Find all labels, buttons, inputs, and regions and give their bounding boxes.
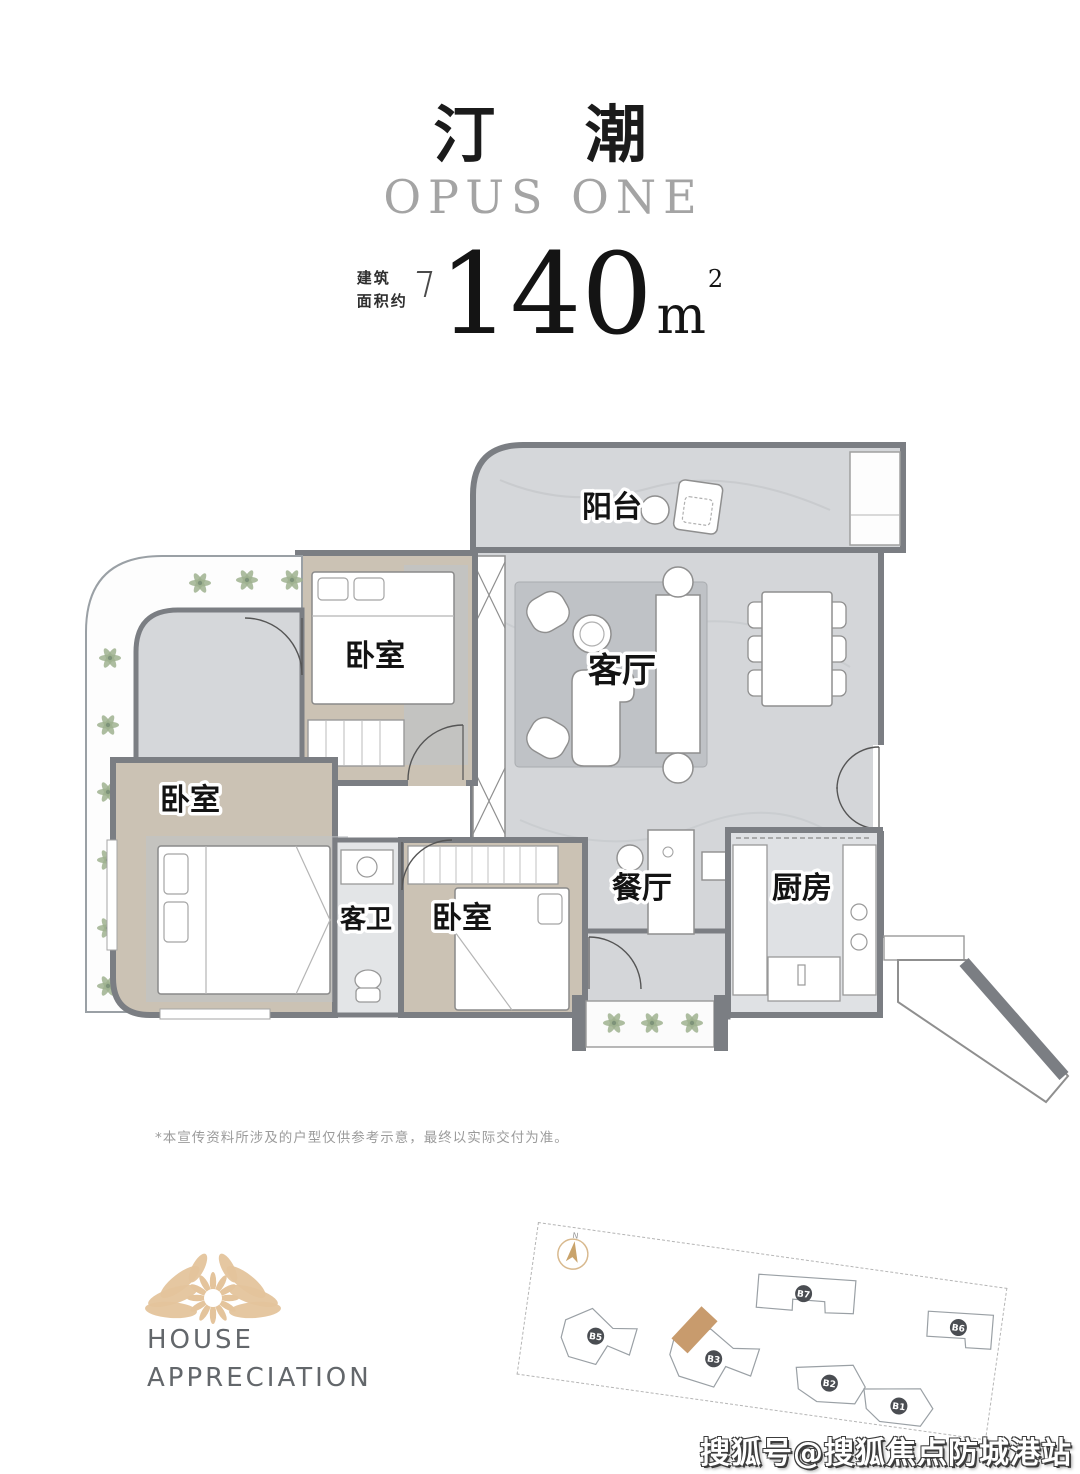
brand-logo bbox=[138, 1236, 288, 1336]
room-bath: 客卫 bbox=[335, 840, 401, 1015]
room-bedroom-top: 卧室 bbox=[298, 553, 475, 786]
room-label-bedroom-mid: 卧室 bbox=[432, 901, 492, 936]
room-label-living: 客厅 bbox=[588, 651, 656, 691]
area-unit: m bbox=[657, 293, 706, 340]
room-label-bedroom-top: 卧室 bbox=[345, 639, 405, 674]
watermark-text: 搜狐号@搜狐焦点防城港站 bbox=[700, 1428, 1072, 1472]
coffee-table bbox=[573, 615, 611, 653]
planter bbox=[663, 753, 693, 783]
room-balcony: 阳台 bbox=[473, 445, 903, 550]
area-number: 140 bbox=[439, 252, 653, 339]
area-prefix: 建筑 面积约 bbox=[357, 267, 408, 314]
counter bbox=[733, 845, 767, 995]
area-figure: 建筑 面积约 140 m 2 bbox=[0, 252, 1080, 339]
bed bbox=[158, 846, 330, 994]
sink bbox=[768, 957, 840, 1001]
room-label-bedroom-left: 卧室 bbox=[160, 783, 220, 818]
area-exponent: 2 bbox=[708, 265, 723, 293]
badge-b2: B2 bbox=[822, 1379, 836, 1391]
toilet bbox=[355, 970, 381, 1002]
floorplan-poster: 汀 潮 OPUS ONE 建筑 面积约 140 m 2 bbox=[0, 0, 1080, 1474]
room-bedroom-left: 卧室 bbox=[107, 760, 348, 1019]
site-map: N B7 B6 B5 B3 bbox=[517, 1222, 1008, 1440]
page-title: 汀 潮 bbox=[0, 84, 1080, 174]
external-corridor bbox=[884, 936, 1068, 1102]
area-prefix-line1: 建筑 bbox=[357, 267, 408, 290]
disclaimer-text: *本宣传资料所涉及的户型仅供参考示意，最终以实际交付为准。 bbox=[155, 1126, 569, 1146]
room-label-dining: 餐厅 bbox=[612, 871, 672, 906]
balcony-chair bbox=[673, 479, 724, 535]
room-bedroom-mid: 卧室 bbox=[401, 840, 585, 1015]
bed bbox=[312, 572, 454, 704]
badge-b7: B7 bbox=[796, 1289, 810, 1301]
compass-icon: N bbox=[556, 1229, 591, 1271]
badge-b3: B3 bbox=[706, 1354, 720, 1366]
balcony-side-table bbox=[641, 496, 669, 524]
tv-console bbox=[656, 595, 700, 753]
area-prefix-line2: 面积约 bbox=[357, 290, 408, 313]
vanity bbox=[341, 850, 393, 884]
brand-name: HOUSE APPRECIATION bbox=[147, 1322, 372, 1397]
room-label-kitchen: 厨房 bbox=[772, 871, 832, 906]
site-map-drawing: N B7 B6 B5 B3 bbox=[518, 1223, 1004, 1437]
bracket-mark bbox=[411, 271, 432, 297]
badge-b5: B5 bbox=[588, 1332, 602, 1344]
brand-line1: HOUSE bbox=[147, 1322, 372, 1360]
badge-b1: B1 bbox=[891, 1402, 905, 1414]
room-kitchen: 厨房 bbox=[728, 830, 880, 1015]
planter bbox=[663, 567, 693, 597]
terrace-floor bbox=[136, 610, 302, 780]
page-subtitle: OPUS ONE bbox=[0, 170, 1080, 224]
utility-platform bbox=[850, 452, 900, 545]
bottom-planter bbox=[572, 995, 728, 1051]
room-label-balcony: 阳台 bbox=[582, 490, 642, 525]
dining-table-six bbox=[748, 592, 846, 706]
room-label-bath: 客卫 bbox=[340, 904, 392, 935]
floorplan-drawing: 阳台 bbox=[0, 420, 1080, 1120]
phoenix-emblem bbox=[145, 1251, 282, 1324]
brand-line2: APPRECIATION bbox=[147, 1360, 372, 1398]
badge-b6: B6 bbox=[951, 1323, 965, 1335]
wardrobe bbox=[408, 846, 558, 884]
